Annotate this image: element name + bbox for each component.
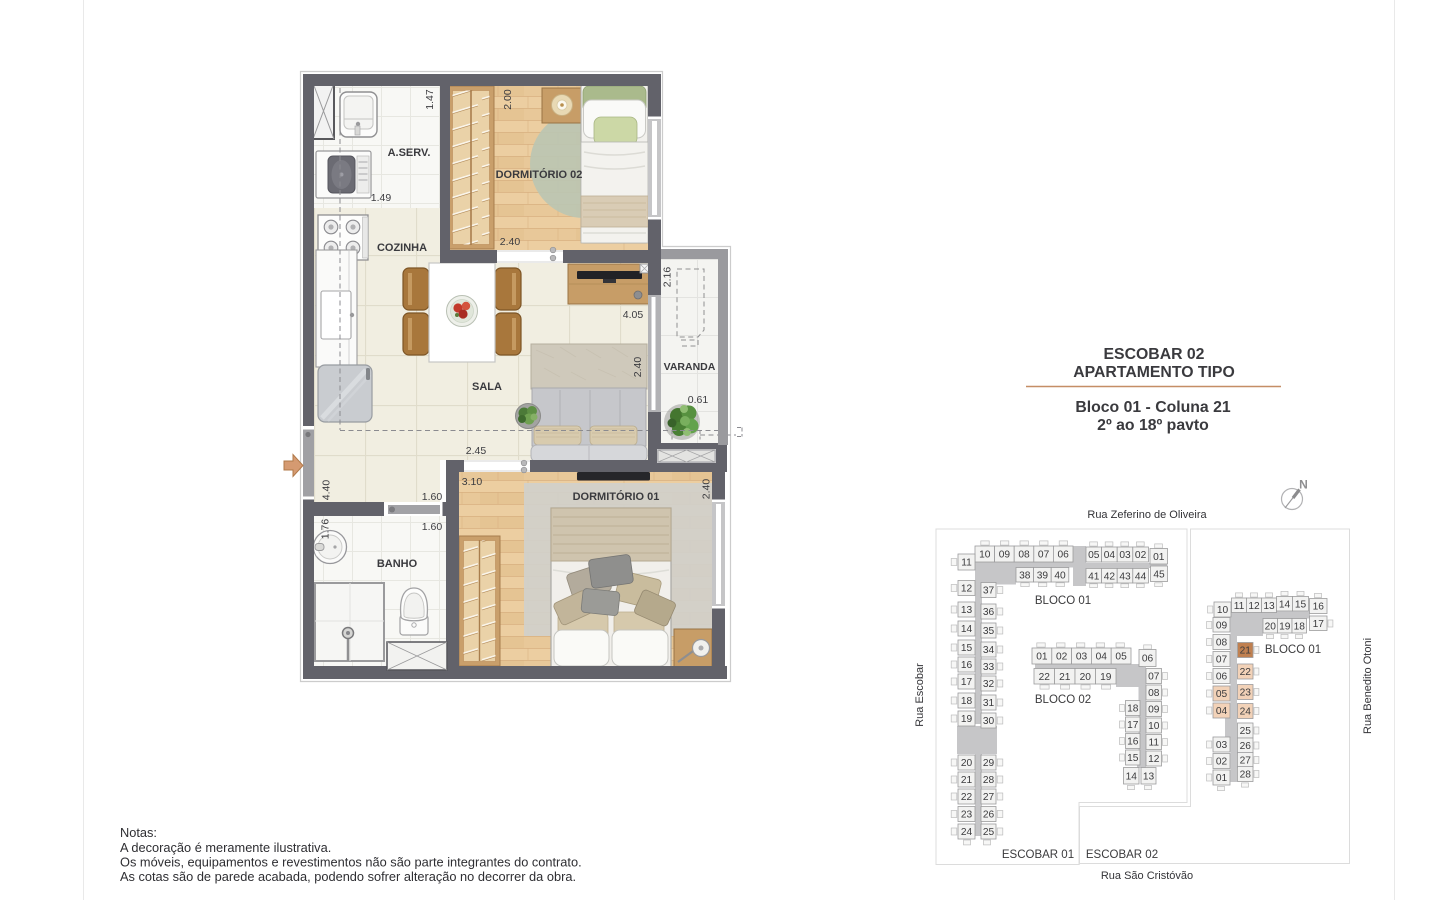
svg-text:ESCOBAR 02: ESCOBAR 02	[1086, 849, 1158, 861]
svg-text:43: 43	[1119, 571, 1131, 582]
svg-text:17: 17	[1127, 720, 1139, 731]
svg-text:10: 10	[979, 550, 991, 561]
svg-text:26: 26	[983, 810, 995, 821]
svg-text:BLOCO 01: BLOCO 01	[1035, 595, 1091, 607]
svg-text:2.40: 2.40	[632, 357, 644, 378]
svg-text:15: 15	[1127, 753, 1139, 764]
svg-text:15: 15	[1295, 599, 1307, 610]
svg-text:22: 22	[961, 792, 973, 803]
svg-text:10: 10	[1148, 721, 1160, 732]
svg-text:21: 21	[1059, 672, 1071, 683]
svg-text:Rua Escobar: Rua Escobar	[914, 663, 926, 727]
svg-text:29: 29	[983, 758, 995, 769]
svg-text:14: 14	[961, 624, 973, 635]
svg-text:07: 07	[1038, 550, 1050, 561]
svg-text:02: 02	[1135, 550, 1147, 561]
svg-text:COZINHA: COZINHA	[377, 242, 427, 254]
svg-text:02: 02	[1056, 652, 1068, 663]
svg-text:16: 16	[961, 660, 973, 671]
svg-text:BANHO: BANHO	[377, 558, 418, 570]
svg-text:12: 12	[1248, 601, 1260, 612]
svg-text:14: 14	[1126, 771, 1138, 782]
svg-text:20: 20	[1080, 672, 1092, 683]
svg-text:2º ao 18º pavto: 2º ao 18º pavto	[1097, 417, 1209, 434]
svg-text:20: 20	[961, 758, 973, 769]
svg-text:06: 06	[1058, 550, 1070, 561]
svg-text:23: 23	[1240, 688, 1252, 699]
svg-text:09: 09	[1216, 620, 1228, 631]
svg-text:08: 08	[1148, 688, 1160, 699]
svg-text:APARTAMENTO TIPO: APARTAMENTO TIPO	[1073, 364, 1234, 381]
svg-text:08: 08	[1216, 638, 1228, 649]
svg-text:11: 11	[961, 558, 972, 569]
svg-text:As cotas são de parede acabada: As cotas são de parede acabada, podendo …	[120, 869, 576, 884]
svg-text:01: 01	[1036, 652, 1048, 663]
svg-text:05: 05	[1115, 652, 1127, 663]
svg-text:18: 18	[1294, 621, 1306, 632]
svg-text:01: 01	[1216, 773, 1228, 784]
svg-text:11: 11	[1234, 601, 1245, 612]
svg-text:03: 03	[1216, 740, 1228, 751]
svg-text:03: 03	[1119, 550, 1131, 561]
svg-text:04: 04	[1096, 652, 1108, 663]
svg-text:21: 21	[961, 775, 973, 786]
svg-text:17: 17	[961, 677, 973, 688]
svg-text:2.45: 2.45	[466, 445, 487, 457]
svg-text:42: 42	[1104, 571, 1116, 582]
svg-text:DORMITÓRIO 01: DORMITÓRIO 01	[573, 490, 660, 503]
svg-text:23: 23	[961, 810, 973, 821]
svg-text:1.49: 1.49	[371, 192, 392, 204]
svg-text:3.10: 3.10	[462, 476, 483, 488]
svg-text:06: 06	[1142, 654, 1154, 665]
svg-text:4.05: 4.05	[623, 309, 644, 321]
svg-text:17: 17	[1313, 619, 1325, 630]
svg-text:02: 02	[1216, 757, 1228, 768]
svg-text:Rua Benedito Otoni: Rua Benedito Otoni	[1362, 638, 1374, 734]
svg-text:19: 19	[1279, 621, 1291, 632]
svg-text:34: 34	[983, 645, 995, 656]
svg-text:01: 01	[1153, 552, 1165, 563]
svg-text:37: 37	[983, 586, 995, 597]
svg-text:12: 12	[1148, 754, 1160, 765]
svg-text:0.61: 0.61	[688, 394, 709, 406]
svg-text:BLOCO 02: BLOCO 02	[1035, 694, 1091, 706]
svg-text:16: 16	[1313, 602, 1325, 613]
svg-text:19: 19	[961, 714, 973, 725]
svg-text:44: 44	[1135, 571, 1147, 582]
svg-text:Notas:: Notas:	[120, 825, 157, 840]
svg-text:30: 30	[983, 716, 995, 727]
svg-text:28: 28	[983, 775, 995, 786]
svg-text:27: 27	[1240, 756, 1252, 767]
svg-text:41: 41	[1088, 571, 1100, 582]
svg-text:27: 27	[983, 792, 995, 803]
svg-text:2.40: 2.40	[500, 236, 521, 248]
svg-text:40: 40	[1054, 570, 1066, 581]
svg-text:18: 18	[961, 696, 973, 707]
svg-text:25: 25	[983, 827, 995, 838]
svg-text:20: 20	[1265, 621, 1277, 632]
svg-text:19: 19	[1100, 672, 1112, 683]
svg-text:Bloco 01 - Coluna 21: Bloco 01 - Coluna 21	[1075, 399, 1231, 416]
svg-text:2.16: 2.16	[662, 267, 674, 288]
svg-text:22: 22	[1039, 672, 1051, 683]
svg-text:13: 13	[961, 605, 973, 616]
svg-text:14: 14	[1279, 599, 1291, 610]
svg-text:1.60: 1.60	[422, 491, 443, 503]
svg-text:08: 08	[1018, 550, 1030, 561]
svg-text:N: N	[1299, 478, 1308, 492]
svg-text:07: 07	[1216, 655, 1228, 666]
svg-text:VARANDA: VARANDA	[664, 361, 716, 373]
svg-text:2.40: 2.40	[701, 479, 713, 500]
svg-text:09: 09	[999, 550, 1011, 561]
svg-text:18: 18	[1127, 704, 1139, 715]
svg-text:ESCOBAR 01: ESCOBAR 01	[1002, 849, 1074, 861]
svg-text:03: 03	[1076, 652, 1088, 663]
svg-text:BLOCO 01: BLOCO 01	[1265, 644, 1321, 656]
svg-text:Rua Zeferino de Oliveira: Rua Zeferino de Oliveira	[1087, 509, 1207, 521]
svg-text:15: 15	[961, 643, 973, 654]
svg-text:13: 13	[1263, 601, 1275, 612]
svg-text:22: 22	[1240, 667, 1252, 678]
svg-text:Rua São Cristóvão: Rua São Cristóvão	[1101, 870, 1193, 882]
svg-text:16: 16	[1127, 737, 1139, 748]
svg-text:07: 07	[1148, 672, 1160, 683]
svg-text:39: 39	[1037, 570, 1049, 581]
svg-text:32: 32	[983, 679, 995, 690]
svg-text:21: 21	[1240, 646, 1252, 657]
svg-text:Os móveis, equipamentos e reve: Os móveis, equipamentos e revestimentos …	[120, 855, 582, 870]
svg-text:1.47: 1.47	[424, 89, 436, 110]
svg-text:35: 35	[983, 626, 995, 637]
svg-text:33: 33	[983, 662, 995, 673]
svg-text:10: 10	[1217, 605, 1229, 616]
svg-text:09: 09	[1148, 705, 1160, 716]
svg-text:13: 13	[1143, 771, 1155, 782]
svg-text:04: 04	[1104, 550, 1116, 561]
svg-text:1.76: 1.76	[320, 519, 332, 540]
svg-text:11: 11	[1148, 738, 1159, 749]
svg-text:45: 45	[1153, 569, 1165, 580]
svg-text:2.00: 2.00	[502, 89, 514, 110]
svg-text:24: 24	[961, 827, 973, 838]
svg-text:4.40: 4.40	[321, 480, 333, 501]
svg-text:SALA: SALA	[472, 381, 502, 393]
svg-text:28: 28	[1240, 770, 1252, 781]
svg-text:1.60: 1.60	[422, 521, 443, 533]
svg-text:DORMITÓRIO 02: DORMITÓRIO 02	[496, 168, 583, 181]
svg-text:26: 26	[1240, 741, 1252, 752]
svg-text:12: 12	[961, 584, 973, 595]
svg-text:ESCOBAR 02: ESCOBAR 02	[1104, 346, 1205, 363]
svg-text:A.SERV.: A.SERV.	[388, 147, 431, 159]
svg-text:24: 24	[1240, 707, 1252, 718]
svg-text:38: 38	[1019, 570, 1031, 581]
svg-text:05: 05	[1088, 550, 1100, 561]
svg-text:06: 06	[1216, 672, 1228, 683]
svg-text:05: 05	[1216, 689, 1228, 700]
svg-text:A decoração é meramente ilustr: A decoração é meramente ilustrativa.	[120, 840, 331, 855]
svg-text:25: 25	[1240, 726, 1252, 737]
svg-text:36: 36	[983, 607, 995, 618]
svg-text:04: 04	[1216, 706, 1228, 717]
svg-text:31: 31	[983, 698, 995, 709]
